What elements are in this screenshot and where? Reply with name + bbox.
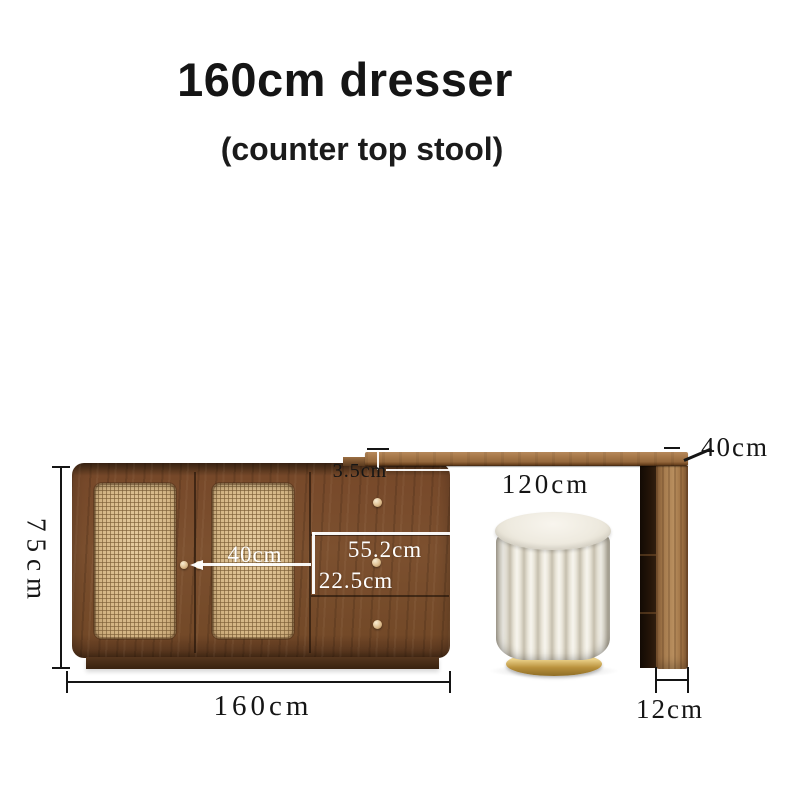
drawer-seam-bottom xyxy=(311,595,449,597)
thickness-dim-label: 3.5cm xyxy=(328,461,392,482)
drawer-knob-top xyxy=(373,498,382,507)
height-dim-label: 75cm xyxy=(22,518,50,606)
width-dim-tick-left xyxy=(66,671,68,693)
drawer-height-label: 22.5cm xyxy=(314,569,398,593)
height-dim-line xyxy=(60,467,62,669)
page-subtitle: (counter top stool) xyxy=(0,131,724,168)
leg-shelf-line-lower xyxy=(640,612,657,614)
inner-depth-label: 40cm xyxy=(222,543,288,567)
leg-width-line xyxy=(655,679,689,681)
left-door-rattan-panel xyxy=(94,483,176,639)
page-title: 160cm dresser xyxy=(0,52,690,107)
leg-inner-shelf-side xyxy=(640,466,657,668)
drawer-width-line xyxy=(312,532,450,535)
drawer-knob-bottom xyxy=(373,620,382,629)
stool-body xyxy=(496,532,610,660)
leg-wood-face xyxy=(656,466,688,669)
countertop-span-label: 120cm xyxy=(496,470,596,498)
left-door-knob xyxy=(180,561,188,569)
leg-shelf-line-upper xyxy=(640,554,657,556)
countertop-depth-dash xyxy=(664,447,680,449)
thickness-dim-leader-line xyxy=(386,469,450,471)
countertop-plank xyxy=(365,452,688,466)
width-dim-line xyxy=(66,681,451,683)
height-dim-tick-bottom xyxy=(52,667,70,669)
width-dim-label: 160cm xyxy=(168,691,358,721)
cabinet-plinth xyxy=(86,657,439,669)
drawer-width-label: 55.2cm xyxy=(343,538,427,562)
leg-width-label: 12cm xyxy=(630,695,710,723)
countertop-depth-label: 40cm xyxy=(697,433,773,461)
product-dimension-diagram: 160cm dresser (counter top stool) 75cm 1… xyxy=(0,0,800,800)
height-dim-tick-top xyxy=(52,466,70,468)
width-dim-tick-right xyxy=(449,671,451,693)
stool-cushion xyxy=(495,512,611,550)
